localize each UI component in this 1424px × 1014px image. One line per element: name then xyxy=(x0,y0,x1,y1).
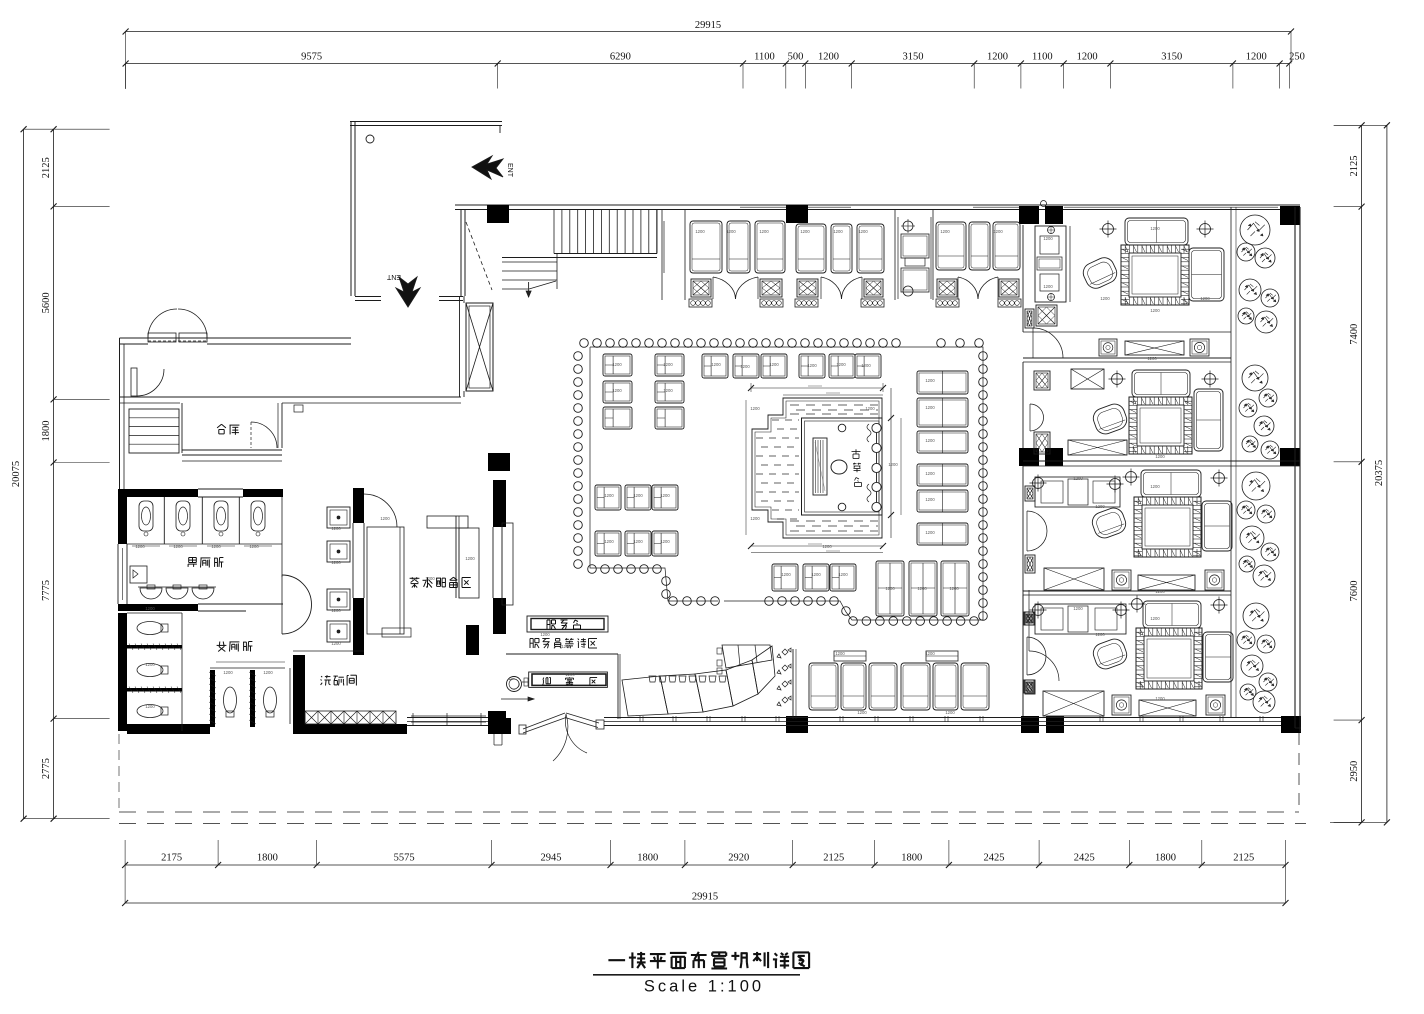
svg-text:1200: 1200 xyxy=(331,641,341,646)
svg-text:1200: 1200 xyxy=(173,544,183,549)
svg-text:1200: 1200 xyxy=(660,539,670,544)
svg-text:1200: 1200 xyxy=(940,229,950,234)
svg-text:2175: 2175 xyxy=(161,853,182,864)
svg-text:1200: 1200 xyxy=(1155,696,1165,701)
svg-text:1200: 1200 xyxy=(465,556,475,561)
svg-text:1200: 1200 xyxy=(1073,476,1083,481)
svg-text:20075: 20075 xyxy=(11,461,22,487)
svg-text:2950: 2950 xyxy=(1349,761,1360,782)
svg-text:1200: 1200 xyxy=(917,586,927,591)
svg-text:1200: 1200 xyxy=(223,670,233,675)
svg-text:1200: 1200 xyxy=(925,651,935,656)
svg-text:1200: 1200 xyxy=(565,672,575,677)
svg-text:1200: 1200 xyxy=(750,516,760,521)
svg-text:1200: 1200 xyxy=(781,572,791,577)
svg-text:1200: 1200 xyxy=(807,363,817,368)
svg-text:1800: 1800 xyxy=(901,853,922,864)
svg-text:1200: 1200 xyxy=(800,229,810,234)
svg-text:2425: 2425 xyxy=(984,853,1005,864)
svg-text:1200: 1200 xyxy=(1100,296,1110,301)
svg-text:2425: 2425 xyxy=(1074,853,1095,864)
svg-text:1200: 1200 xyxy=(925,530,935,535)
svg-text:1200: 1200 xyxy=(865,406,875,411)
svg-text:1200: 1200 xyxy=(888,462,898,467)
svg-text:1200: 1200 xyxy=(1155,589,1165,594)
svg-text:1200: 1200 xyxy=(211,544,221,549)
svg-text:1200: 1200 xyxy=(380,516,390,521)
svg-text:5600: 5600 xyxy=(41,292,52,313)
svg-text:2920: 2920 xyxy=(728,853,749,864)
svg-text:9575: 9575 xyxy=(301,52,322,63)
svg-text:2125: 2125 xyxy=(823,853,844,864)
svg-text:3150: 3150 xyxy=(903,52,924,63)
svg-text:1200: 1200 xyxy=(726,229,736,234)
svg-text:1200: 1200 xyxy=(604,493,614,498)
svg-text:1200: 1200 xyxy=(612,362,622,367)
svg-text:1200: 1200 xyxy=(145,606,155,611)
svg-text:1200: 1200 xyxy=(249,544,259,549)
svg-text:1200: 1200 xyxy=(633,493,643,498)
svg-text:1200: 1200 xyxy=(861,363,871,368)
svg-text:1200: 1200 xyxy=(857,710,867,715)
svg-text:1200: 1200 xyxy=(750,406,760,411)
svg-text:1200: 1200 xyxy=(1043,284,1053,289)
svg-text:1200: 1200 xyxy=(425,576,435,581)
svg-text:1200: 1200 xyxy=(663,362,673,367)
svg-text:1200: 1200 xyxy=(945,710,955,715)
svg-text:1200: 1200 xyxy=(1200,296,1210,301)
svg-text:1800: 1800 xyxy=(41,420,52,441)
svg-text:1200: 1200 xyxy=(145,662,155,667)
svg-text:1200: 1200 xyxy=(711,362,721,367)
svg-text:250: 250 xyxy=(1289,52,1305,63)
svg-text:1200: 1200 xyxy=(769,362,779,367)
svg-text:1800: 1800 xyxy=(637,853,658,864)
svg-text:1200: 1200 xyxy=(660,493,670,498)
svg-text:1200: 1200 xyxy=(818,52,839,63)
svg-text:1200: 1200 xyxy=(836,362,846,367)
svg-text:1200: 1200 xyxy=(1155,454,1165,459)
svg-text:2775: 2775 xyxy=(41,758,52,779)
svg-text:1200: 1200 xyxy=(949,586,959,591)
svg-text:29915: 29915 xyxy=(695,20,721,31)
svg-text:ENT: ENT xyxy=(386,273,401,280)
svg-text:ENT: ENT xyxy=(506,163,513,178)
svg-text:1200: 1200 xyxy=(1246,52,1267,63)
svg-text:1200: 1200 xyxy=(135,544,145,549)
svg-text:1100: 1100 xyxy=(754,52,775,63)
svg-text:3150: 3150 xyxy=(1161,52,1182,63)
svg-text:1200: 1200 xyxy=(1150,308,1160,313)
svg-text:1200: 1200 xyxy=(885,586,895,591)
svg-text:1200: 1200 xyxy=(835,651,845,656)
svg-text:1200: 1200 xyxy=(1077,52,1098,63)
svg-text:1200: 1200 xyxy=(1147,356,1157,361)
svg-text:1200: 1200 xyxy=(858,229,868,234)
svg-text:7600: 7600 xyxy=(1349,580,1360,601)
svg-text:1200: 1200 xyxy=(633,539,643,544)
svg-text:1200: 1200 xyxy=(759,229,769,234)
svg-text:1200: 1200 xyxy=(1043,236,1053,241)
svg-text:1200: 1200 xyxy=(838,572,848,577)
svg-text:500: 500 xyxy=(788,52,804,63)
svg-text:1200: 1200 xyxy=(822,544,832,549)
svg-text:2125: 2125 xyxy=(1349,155,1360,176)
svg-text:7400: 7400 xyxy=(1349,324,1360,345)
svg-text:1200: 1200 xyxy=(561,644,571,649)
svg-text:2945: 2945 xyxy=(541,853,562,864)
svg-text:20375: 20375 xyxy=(1374,460,1385,486)
svg-text:1200: 1200 xyxy=(925,471,935,476)
svg-text:1200: 1200 xyxy=(695,229,705,234)
svg-text:1200: 1200 xyxy=(331,608,341,613)
svg-text:1200: 1200 xyxy=(925,497,935,502)
svg-text:Scale 1:100: Scale 1:100 xyxy=(644,978,764,996)
svg-text:1200: 1200 xyxy=(925,405,935,410)
svg-text:2125: 2125 xyxy=(1233,853,1254,864)
svg-text:6290: 6290 xyxy=(610,52,631,63)
svg-text:1800: 1800 xyxy=(1155,853,1176,864)
svg-text:7775: 7775 xyxy=(41,580,52,601)
svg-text:1200: 1200 xyxy=(993,229,1003,234)
svg-text:1200: 1200 xyxy=(540,632,550,637)
svg-text:1200: 1200 xyxy=(1150,226,1160,231)
svg-text:1200: 1200 xyxy=(925,378,935,383)
svg-text:1200: 1200 xyxy=(612,388,622,393)
svg-text:1200: 1200 xyxy=(604,539,614,544)
svg-text:1200: 1200 xyxy=(740,364,750,369)
svg-text:1200: 1200 xyxy=(331,526,341,531)
svg-text:1100: 1100 xyxy=(1032,52,1053,63)
svg-text:1200: 1200 xyxy=(1073,606,1083,611)
svg-text:1800: 1800 xyxy=(257,853,278,864)
svg-text:1200: 1200 xyxy=(811,572,821,577)
svg-text:1200: 1200 xyxy=(1150,484,1160,489)
svg-text:5575: 5575 xyxy=(394,853,415,864)
svg-text:1200: 1200 xyxy=(1095,504,1105,509)
svg-text:1200: 1200 xyxy=(663,388,673,393)
svg-text:29915: 29915 xyxy=(692,892,718,903)
svg-text:1200: 1200 xyxy=(145,704,155,709)
svg-text:1200: 1200 xyxy=(833,229,843,234)
svg-text:1200: 1200 xyxy=(925,438,935,443)
svg-text:1200: 1200 xyxy=(987,52,1008,63)
svg-text:2125: 2125 xyxy=(41,157,52,178)
svg-text:1200: 1200 xyxy=(263,670,273,675)
svg-text:1200: 1200 xyxy=(331,560,341,565)
svg-text:1200: 1200 xyxy=(1150,616,1160,621)
svg-text:1200: 1200 xyxy=(1095,632,1105,637)
